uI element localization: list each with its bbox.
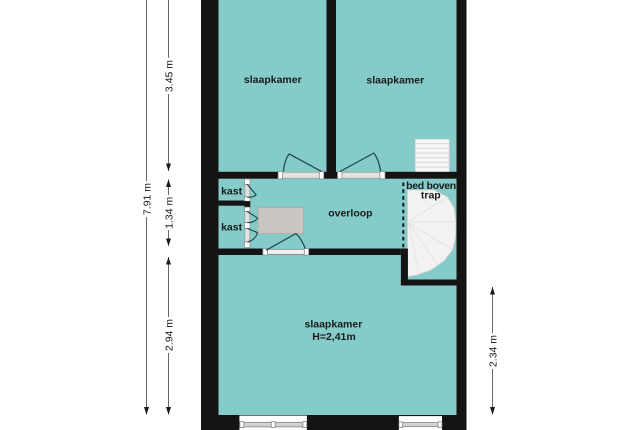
svg-text:trap: trap: [421, 190, 441, 202]
svg-text:2.94 m: 2.94 m: [163, 319, 175, 351]
svg-text:kast: kast: [221, 221, 243, 233]
svg-text:7.91 m: 7.91 m: [141, 183, 153, 215]
svg-text:overloop: overloop: [328, 208, 372, 220]
svg-text:slaapkamer: slaapkamer: [366, 75, 424, 87]
svg-text:2.34 m: 2.34 m: [487, 335, 499, 367]
svg-text:1.34 m: 1.34 m: [163, 197, 175, 229]
svg-text:3.45 m: 3.45 m: [163, 60, 175, 92]
svg-text:slaapkamer: slaapkamer: [244, 74, 302, 86]
svg-text:H=2,41m: H=2,41m: [312, 331, 356, 343]
svg-text:kast: kast: [221, 185, 243, 197]
svg-text:slaapkamer: slaapkamer: [305, 319, 363, 331]
